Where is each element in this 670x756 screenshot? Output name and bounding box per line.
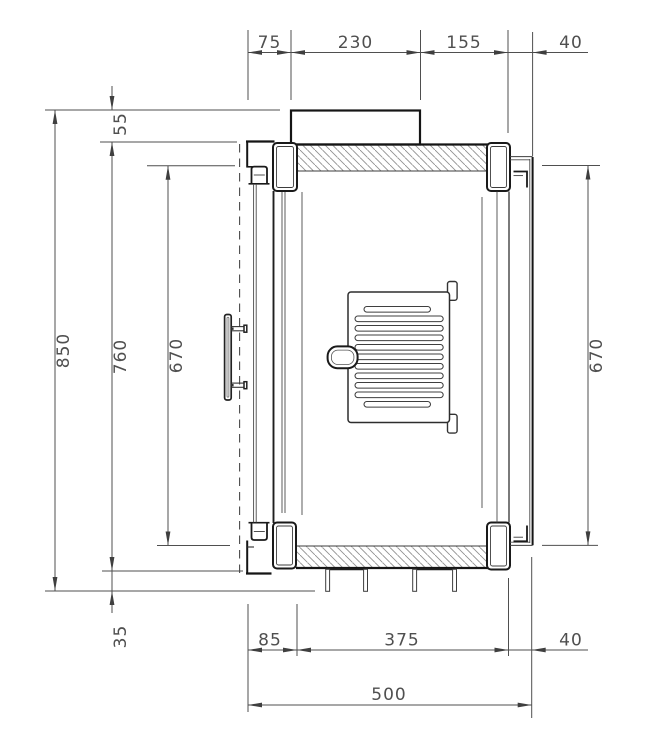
dim-label-left-55: 55 — [111, 112, 131, 136]
dim-label-bottom-375: 375 — [384, 631, 419, 651]
technical-drawing-page: 75 230 155 40 55 850 760 670 35 670 85 3… — [0, 0, 670, 756]
foot-leg — [413, 569, 417, 591]
dim-label-left-670: 670 — [167, 338, 187, 373]
dim-label-right-670: 670 — [587, 338, 607, 373]
dim-label-left-35: 35 — [111, 625, 131, 649]
dim-label-left-760: 760 — [111, 339, 131, 374]
inner-right-wall-lines — [482, 192, 509, 523]
dim-label-top-155: 155 — [446, 33, 481, 53]
dim-label-top-40: 40 — [559, 33, 583, 53]
dim-label-left-850: 850 — [54, 333, 74, 368]
bottom-plate — [296, 546, 488, 568]
stove-body — [225, 111, 533, 592]
foot-leg — [326, 569, 330, 591]
stove-feet — [326, 569, 457, 591]
door-handle-bar — [225, 315, 232, 401]
door-handle — [225, 315, 247, 401]
dim-label-top-75: 75 — [258, 33, 282, 53]
handle-stem-lower — [231, 382, 247, 389]
dim-label-bottom-40: 40 — [559, 631, 583, 651]
top-plate — [296, 145, 488, 172]
door-glass-panel — [254, 184, 257, 522]
inner-left-wall-lines — [282, 192, 302, 515]
door-frame — [246, 141, 275, 575]
dim-label-bottom-85: 85 — [258, 631, 282, 651]
dim-label-top-230: 230 — [338, 33, 373, 53]
dim-label-bottom-500: 500 — [371, 685, 406, 705]
flue-collar — [291, 111, 420, 145]
glass-clamps — [249, 167, 270, 540]
handle-stem-upper — [231, 325, 247, 332]
grate-plate — [328, 282, 458, 434]
stove-section-drawing: 75 230 155 40 55 850 760 670 35 670 85 3… — [0, 0, 670, 756]
right-outer-skin — [510, 157, 533, 546]
grate-slots — [355, 307, 443, 408]
grate-knob — [328, 346, 358, 368]
foot-leg — [453, 569, 457, 591]
foot-leg — [364, 569, 368, 591]
